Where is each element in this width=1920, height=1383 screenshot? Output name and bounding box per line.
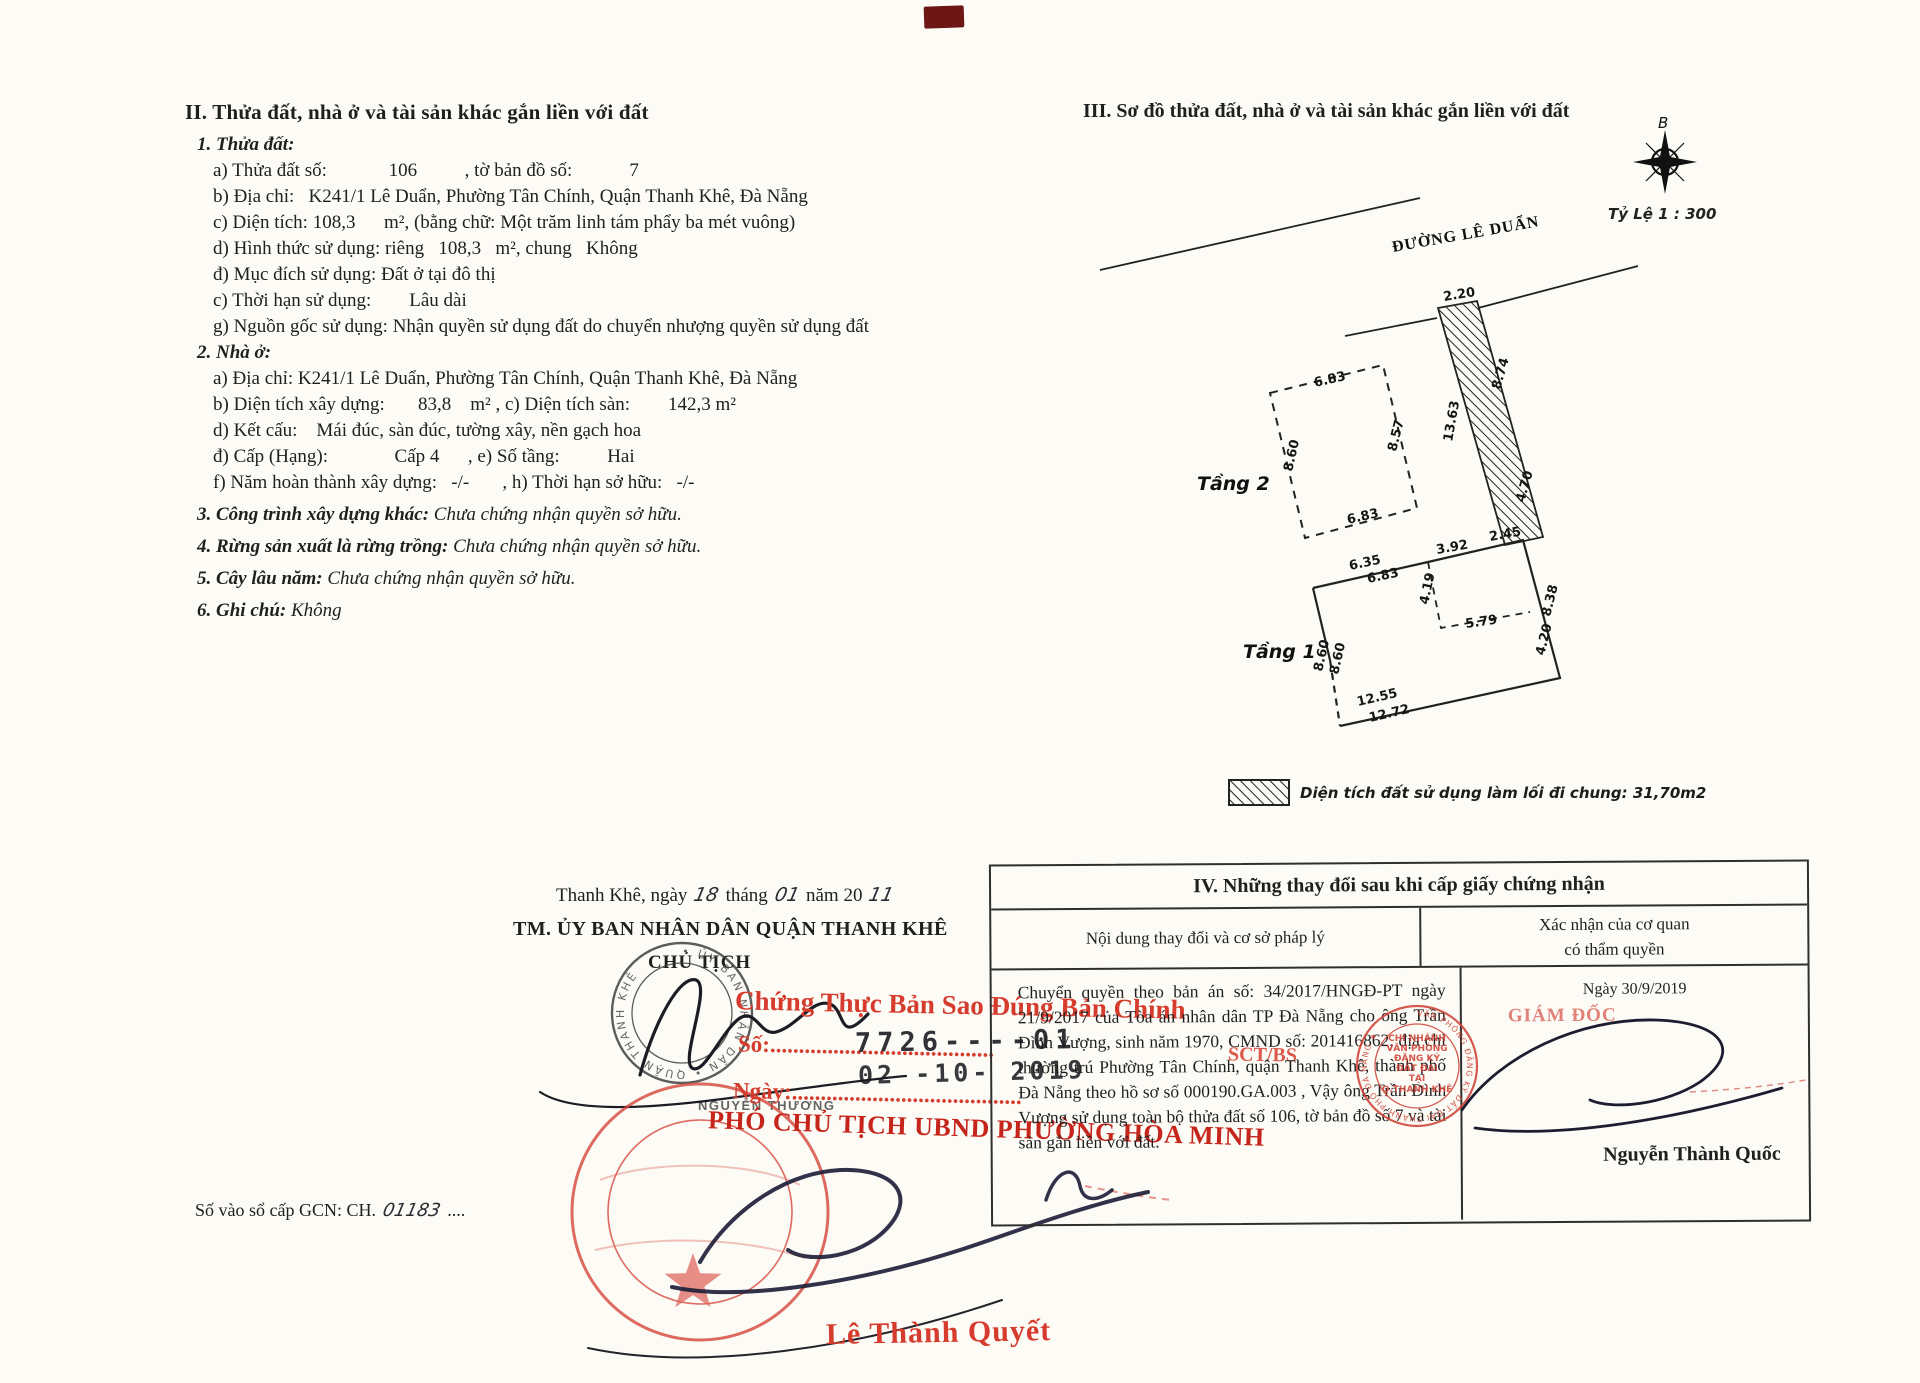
- handwritten-year: 11: [867, 884, 896, 906]
- section2-body: 1. Thửa đất: a) Thửa đất số: 106 , tờ bả…: [197, 132, 917, 624]
- table4-col2-header-line1: Xác nhận của cơ quan: [1421, 911, 1807, 938]
- vice-chairman-name: Lê Thành Quyết: [826, 1314, 1052, 1352]
- scan-corner-artifact: [924, 5, 965, 28]
- black-round-seal: • ỦY BAN NHÂN DÂN • QUẬN THANH KHÊ: [612, 943, 752, 1083]
- s2-item-3: 3. Công trình xây dựng khác: Chưa chứng …: [197, 502, 917, 528]
- seal-line-5: TẠI: [1409, 1074, 1425, 1084]
- legend-label: Diện tích đất sử dụng làm lối đi chung: …: [1300, 784, 1706, 802]
- s2-house-area: b) Diện tích xây dựng: 83,8 m² , c) Diện…: [197, 392, 917, 418]
- dim-f2-left: 8.60: [1281, 438, 1303, 473]
- dim-f2-right: 8.57: [1385, 418, 1407, 453]
- seal-line-1: CHI NHÁNH: [1388, 1032, 1446, 1044]
- s2-item-2: 2. Nhà ở:: [197, 340, 917, 366]
- table4-col2-header: Xác nhận của cơ quan có thẩm quyền: [1421, 906, 1807, 966]
- seal-line-6: Q.THANH KHÊ: [1382, 1083, 1453, 1095]
- road-upper-edge: [1100, 198, 1420, 270]
- handwritten-day: 18: [692, 884, 721, 906]
- s2-parcel-area: c) Diện tích: 108,3 m², (bằng chữ: Một t…: [197, 210, 917, 236]
- gcn-registry-line: Số vào sổ cấp GCN: CH.01183....: [195, 1200, 465, 1221]
- black-seal-ring-text: • ỦY BAN NHÂN DÂN • QUẬN THANH KHÊ: [614, 945, 750, 1081]
- table4-col1-header: Nội dung thay đổi và cơ sở pháp lý: [991, 908, 1421, 969]
- s2-parcel-address: b) Địa chỉ: K241/1 Lê Duẩn, Phường Tân C…: [197, 184, 917, 210]
- sketch-legend: Diện tích đất sử dụng làm lối đi chung: …: [1228, 779, 1706, 806]
- dim-f2-bottom: 6.83: [1346, 506, 1381, 528]
- handwritten-gcn-number: 01183: [381, 1200, 443, 1221]
- dim-strip-left: 13.63: [1441, 400, 1463, 443]
- parcel-sketch: ĐƯỜNG LÊ DUẨN 2.20 8.74 13.63 4.70 2.45 …: [1080, 180, 1660, 740]
- road-name-label: ĐƯỜNG LÊ DUẨN: [1390, 211, 1540, 256]
- road-lower-edge-right: [1478, 266, 1638, 308]
- table4-col2-header-line2: có thẩm quyền: [1421, 936, 1807, 963]
- s2-usage-term: c) Thời hạn sử dụng: Lâu dài: [197, 288, 917, 314]
- dim-f2-top: 6.83: [1313, 369, 1348, 391]
- s2-item-1: 1. Thửa đất:: [197, 132, 917, 158]
- s2-item-4: 4. Rừng sản xuất là rừng trồng: Chưa chứ…: [197, 534, 917, 560]
- floor2-label: Tầng 2: [1197, 472, 1270, 495]
- dim-f1-topright: 3.92: [1435, 538, 1469, 558]
- s2-house-structure: d) Kết cấu: Mái đúc, sàn đúc, tường xây,…: [197, 418, 917, 444]
- floor1-label: Tầng 1: [1243, 640, 1316, 663]
- compass-north-label: B: [1658, 114, 1668, 132]
- seal-line-3: ĐĂNG KÝ: [1394, 1052, 1441, 1064]
- s2-usage-purpose: đ) Mục đích sử dụng: Đất ở tại đô thị: [197, 262, 917, 288]
- dim-f1-right-upper: 8.38: [1539, 583, 1561, 618]
- handwritten-month: 01: [772, 884, 801, 906]
- section2-title: II. Thửa đất, nhà ở và tài sản khác gắn …: [185, 100, 649, 125]
- scanned-land-certificate-page: II. Thửa đất, nhà ở và tài sản khác gắn …: [0, 0, 1920, 1383]
- section3-title: III. Sơ đồ thửa đất, nhà ở và tài sản kh…: [1083, 100, 1569, 123]
- s2-house-address: a) Địa chỉ: K241/1 Lê Duẩn, Phường Tân C…: [197, 366, 917, 392]
- svg-text:• ỦY BAN NHÂN DÂN • QUẬN THANH: • ỦY BAN NHÂN DÂN • QUẬN THANH KHÊ: [614, 945, 750, 1081]
- issue-date-line: Thanh Khê, ngày18tháng01năm 2011: [556, 884, 901, 907]
- hatch-swatch-icon: [1228, 779, 1290, 806]
- director-signature: [1462, 1020, 1782, 1131]
- seal-line-2: VĂN PHÒNG: [1386, 1042, 1447, 1054]
- s2-house-year: f) Năm hoàn thành xây dựng: -/- , h) Thờ…: [197, 470, 917, 496]
- dim-f1-inner-h: 5.79: [1464, 613, 1498, 632]
- s2-usage-origin: g) Nguồn gốc sử dụng: Nhận quyền sử dụng…: [197, 314, 917, 340]
- road-lower-edge-left: [1345, 318, 1437, 336]
- s2-parcel-number: a) Thửa đất số: 106 , tờ bản đồ số: 7: [197, 158, 917, 184]
- registry-red-seal: VĂN PHÒNG ĐĂNG KÝ ĐẤT ĐAI THÀNH PHỐ ĐÀ N…: [1357, 1006, 1477, 1126]
- s2-house-class: đ) Cấp (Hạng): Cấp 4 , e) Số tầng: Hai: [197, 444, 917, 470]
- s2-item-5: 5. Cây lâu năm: Chưa chứng nhận quyền sở…: [197, 566, 917, 592]
- table4-title: IV. Những thay đổi sau khi cấp giấy chứn…: [991, 862, 1807, 911]
- s2-item-6: 6. Ghi chú: Không: [197, 598, 917, 624]
- registry-seal-and-signature: VĂN PHÒNG ĐĂNG KÝ ĐẤT ĐAI THÀNH PHỐ ĐÀ N…: [1340, 985, 1820, 1205]
- s2-usage-form: d) Hình thức sử dụng: riêng 108,3 m², ch…: [197, 236, 917, 262]
